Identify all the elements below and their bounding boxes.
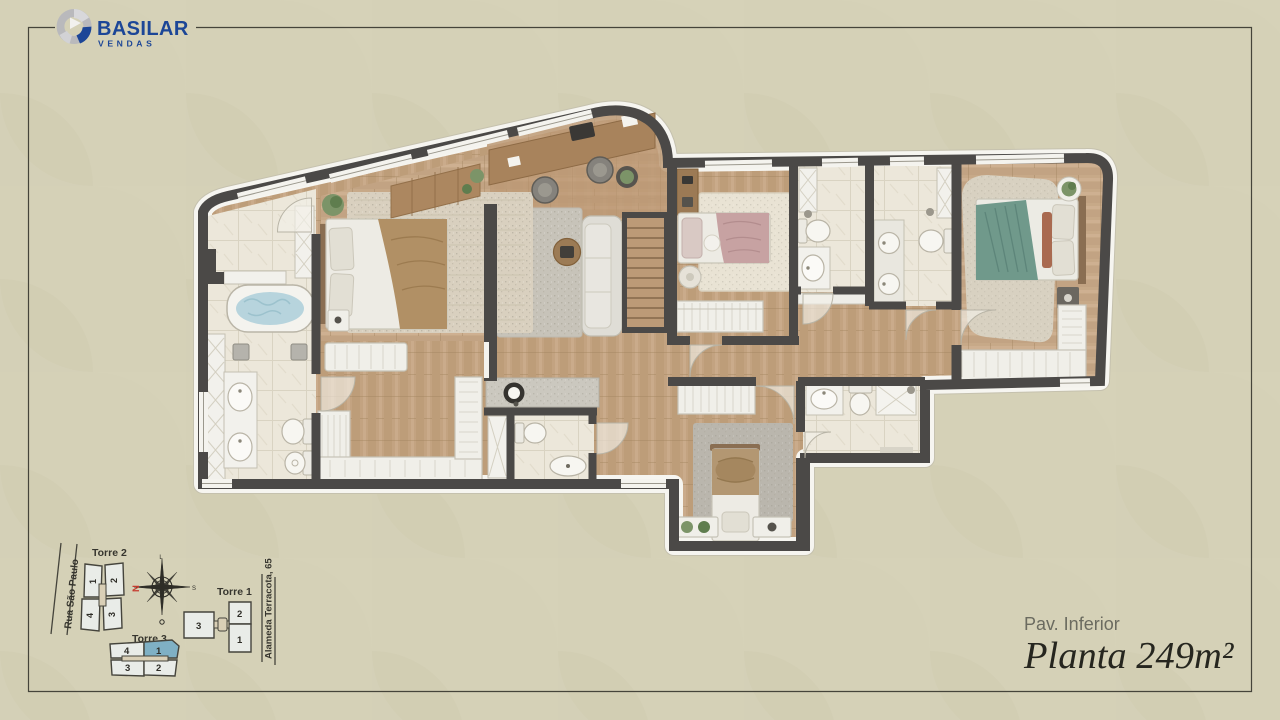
svg-text:1: 1 (88, 579, 98, 584)
svg-text:1: 1 (156, 646, 162, 657)
svg-text:VENDAS: VENDAS (98, 39, 155, 49)
svg-text:3: 3 (107, 612, 117, 617)
svg-text:Planta 249m²: Planta 249m² (1023, 635, 1235, 677)
svg-text:BASILAR: BASILAR (97, 18, 189, 40)
svg-text:S: S (192, 586, 196, 592)
svg-text:4: 4 (124, 646, 130, 657)
svg-text:3: 3 (125, 663, 130, 674)
svg-text:2: 2 (237, 609, 242, 620)
svg-text:Torre 1: Torre 1 (217, 586, 252, 598)
svg-text:3: 3 (196, 621, 201, 632)
svg-text:2: 2 (156, 663, 161, 674)
svg-text:Torre 2: Torre 2 (92, 547, 127, 559)
svg-text:Alameda Terracota, 65: Alameda Terracota, 65 (264, 558, 275, 659)
svg-text:N: N (131, 585, 142, 592)
svg-text:4: 4 (85, 613, 95, 618)
svg-text:Pav. Inferior: Pav. Inferior (1024, 614, 1120, 634)
svg-text:2: 2 (109, 578, 119, 583)
svg-text:1: 1 (237, 635, 243, 646)
